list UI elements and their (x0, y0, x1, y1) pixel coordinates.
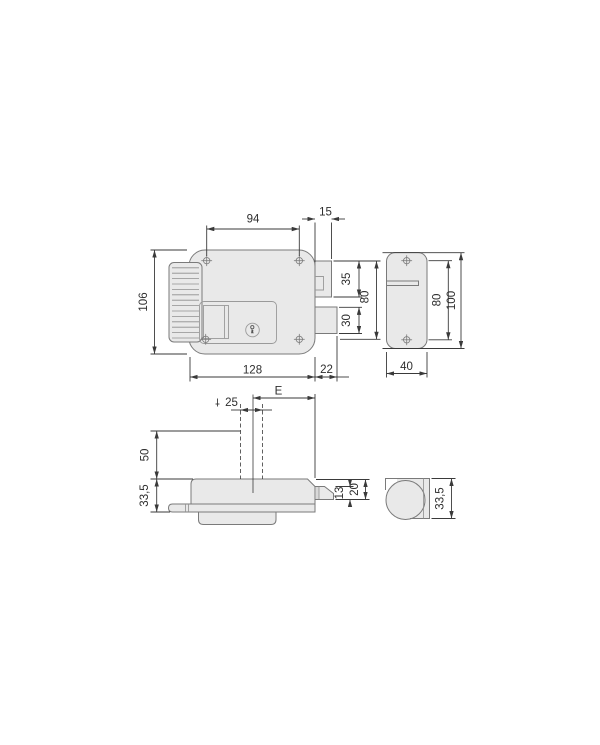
lock-dimension-drawing: 94 15 106 128 22 35 30 80 (0, 0, 600, 745)
dim-label-15: 15 (319, 207, 332, 219)
dim-label-30: 30 (341, 314, 353, 327)
dim-label-33-5-strike: 33,5 (435, 487, 447, 509)
lock-front-view (169, 250, 337, 354)
ribbed-plate (169, 263, 202, 343)
dim-label-80-lock: 80 (360, 291, 372, 304)
dim-label-22: 22 (320, 364, 333, 376)
lock-top-view (169, 395, 334, 525)
strike-roll (386, 481, 425, 520)
dim-label-80-strike: 80 (432, 294, 444, 307)
dim-label-25: 25 (225, 397, 238, 409)
dimensions-strike-top: 33,5 (432, 479, 456, 519)
dim-label-50: 50 (140, 449, 152, 462)
lower-housing-top (199, 512, 277, 525)
dim-label-20: 20 (349, 483, 361, 496)
base-plate-top (169, 504, 316, 512)
strike-slot (387, 281, 419, 286)
dim-label-13: 13 (334, 487, 346, 500)
dim-label-100: 100 (446, 291, 458, 310)
dim-label-128: 128 (243, 365, 262, 377)
dim-label-E: E (275, 386, 283, 398)
dim-label-106: 106 (138, 292, 150, 311)
dim-label-94: 94 (247, 214, 260, 226)
strike-plate-top-view (386, 479, 430, 520)
latch-shade (315, 487, 319, 499)
strike-plate-front-view (387, 253, 428, 349)
dim-label-33-5-lock: 33,5 (139, 484, 151, 506)
dead-bolt (315, 307, 337, 334)
latch-bolt-top (315, 487, 334, 500)
strike-plate (387, 253, 428, 349)
drawing-canvas: 94 15 106 128 22 35 30 80 (0, 0, 600, 745)
dim-label-35: 35 (341, 273, 353, 286)
dim-label-40: 40 (400, 361, 413, 373)
